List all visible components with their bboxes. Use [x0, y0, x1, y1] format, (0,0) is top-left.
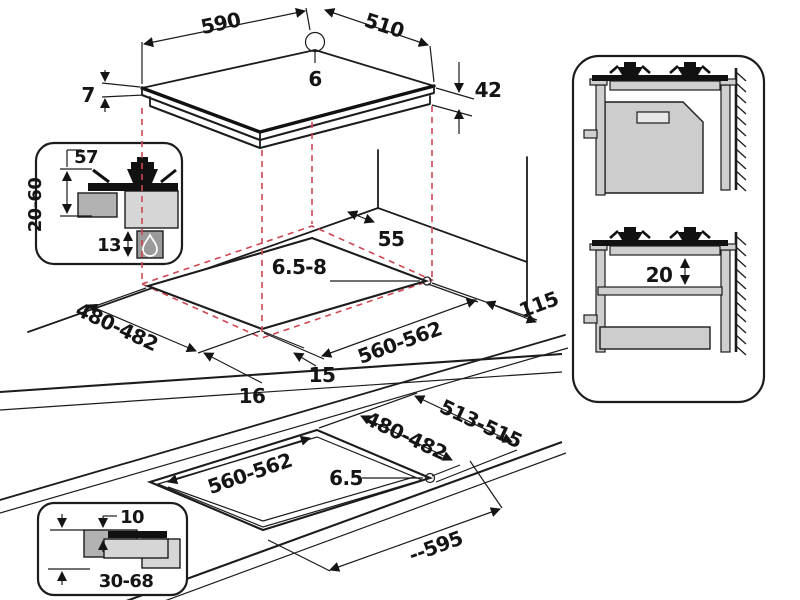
right-bracket	[721, 85, 730, 190]
right-bracket	[721, 250, 730, 352]
worktop-cutout	[148, 238, 426, 329]
dim-depth-510-label: 510	[361, 8, 406, 43]
dim-clearance-13-label: 13	[97, 235, 121, 256]
left-fixing-lug	[584, 130, 597, 138]
dim-right-gap-115-label: 115	[516, 286, 562, 322]
oven-vent	[637, 112, 669, 123]
dim-width-590-label: 590	[199, 7, 243, 39]
dim-worktop-30-68-label: 30-68	[99, 571, 154, 592]
dim-hole-offset-label: 6	[308, 67, 321, 91]
diagram-canvas: 6 590 510 7 42 55	[0, 0, 800, 600]
dim-rear-gap-55-label: 55	[378, 227, 405, 251]
flush-mount-inset: 10 30-68	[38, 503, 187, 595]
dim-cutout-depth-label: 480-482	[72, 297, 162, 356]
hob-glass-side	[592, 240, 728, 246]
dim-shelf-gap-20-label: 20	[646, 263, 673, 287]
hob-body-side	[610, 246, 720, 255]
dim-overhang-left-16-label: 16	[239, 384, 266, 408]
drawer-body	[600, 327, 710, 349]
left-bracket	[596, 85, 605, 195]
dim-burner-height-57-label: 57	[74, 147, 98, 168]
dim-worktop-thickness-label: 20-60	[25, 178, 46, 233]
hob-top-view: 6 590 510 7 42	[81, 7, 501, 148]
hob-body-section	[104, 539, 168, 558]
worktop-section	[78, 193, 117, 217]
hob-body-side	[610, 81, 720, 90]
dim-hole-6-5-8-label: 6.5-8	[272, 255, 327, 279]
ignition-hole-marker	[306, 33, 325, 52]
hob-glass-side	[592, 75, 728, 81]
hob-installation-diagram: 6 590 510 7 42 55	[0, 0, 800, 600]
hob-glass-section	[108, 531, 167, 538]
hob-glass-section	[88, 183, 178, 191]
dim-flush-hole-label: 6.5	[329, 466, 363, 490]
burner-clearance-inset: 57 20-60 13	[25, 143, 182, 264]
hob-body-section	[125, 191, 178, 228]
left-fixing-lug	[584, 315, 597, 323]
dim-cutout-width-label: 560-562	[354, 316, 445, 369]
dim-overhang-front-15-label: 15	[309, 363, 336, 387]
dim-body-height-42-label: 42	[475, 78, 502, 102]
separator-shelf	[598, 287, 722, 295]
dim-glass-thickness-label: 7	[81, 83, 94, 107]
dim-rebate-10-label: 10	[120, 507, 144, 528]
installation-side-views: 20	[573, 56, 764, 402]
